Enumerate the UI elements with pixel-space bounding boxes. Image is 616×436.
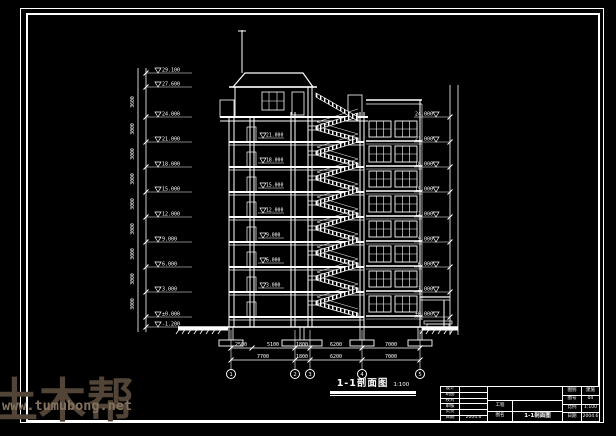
- level-label: 12.000: [162, 212, 180, 218]
- story-dim: 3000: [130, 173, 136, 185]
- axis-number: 2: [293, 372, 296, 378]
- project-value: [513, 401, 562, 410]
- story-dim: 3000: [130, 223, 136, 235]
- left-parapet: [220, 100, 234, 117]
- title-block-value: 2004.6: [582, 413, 599, 421]
- story-dim: 3000: [130, 273, 136, 285]
- title-block-label: 日期: [441, 416, 460, 421]
- level-mark-icon: [155, 287, 161, 292]
- level-label: 15.000: [162, 187, 180, 193]
- level-mark-icon: [433, 287, 439, 292]
- level-label: -1.200: [162, 322, 180, 328]
- drawing-title-text: 1-1剖面图: [337, 378, 389, 389]
- level-mark-icon: [155, 312, 161, 317]
- title-block-value: 建施: [582, 387, 599, 395]
- level-label: 3.000: [418, 287, 433, 293]
- level-label: 15.000: [415, 187, 433, 193]
- level-mark-icon: [433, 137, 439, 142]
- door-opening: [247, 152, 256, 167]
- level-mark-icon: [433, 162, 439, 167]
- story-dim: 3000: [130, 298, 136, 310]
- door-opening: [247, 277, 256, 292]
- penthouse-door: [292, 92, 304, 115]
- level-mark-icon: [155, 82, 161, 87]
- level-label: 18.000: [266, 158, 283, 164]
- level-mark-icon: [155, 68, 161, 73]
- drawing-title: 1-1剖面图 1:100: [330, 371, 416, 396]
- door-opening: [247, 127, 256, 142]
- title-block-signature-column: 设计制图校对审核负责日期2004.6: [441, 387, 488, 421]
- level-label: 18.000: [162, 162, 180, 168]
- level-mark-icon: [155, 137, 161, 142]
- title-block-value: 2004.6: [460, 416, 487, 421]
- entry-step: [424, 321, 452, 324]
- title-block-value: 1:100: [582, 405, 599, 413]
- level-mark-icon: [433, 212, 439, 217]
- dim-value: 5100: [267, 342, 279, 348]
- dim-value: 7700: [257, 354, 269, 360]
- level-label: 21.000: [266, 133, 283, 139]
- level-label: 3.000: [266, 283, 281, 289]
- story-dim: 3000: [130, 148, 136, 160]
- level-mark-icon: [155, 262, 161, 267]
- level-label: 9.000: [162, 237, 177, 243]
- level-label: ±0.000: [162, 312, 180, 318]
- level-label: 15.000: [266, 183, 283, 189]
- level-mark-icon: [433, 312, 439, 317]
- title-block-label: 图别: [563, 387, 582, 395]
- title-block-project-row: 工程: [488, 401, 562, 410]
- drawing-title-scale: 1:100: [393, 382, 409, 388]
- axis-number: 5: [418, 372, 421, 378]
- axis-number: 1: [229, 372, 232, 378]
- sheet-name-value: 1-1剖面图: [513, 412, 562, 421]
- story-dim: 3600: [130, 96, 136, 108]
- title-underline-thick: [330, 391, 416, 394]
- level-mark-icon: [155, 187, 161, 192]
- dim-value: 7000: [385, 354, 397, 360]
- project-label: 工程: [488, 401, 513, 410]
- title-block-info-column: 图别建施图号04比例1:100日期2004.6: [562, 387, 599, 421]
- level-mark-icon: [155, 237, 161, 242]
- ground: [176, 327, 458, 346]
- level-label: 24.000: [162, 112, 180, 118]
- title-block: 设计制图校对审核负责日期2004.6 工程 图名 1-1剖面图 图别建施图号04…: [440, 386, 600, 422]
- left-dimension-chain: 29.10027.60024.00021.00018.00015.00012.0…: [130, 68, 192, 333]
- title-block-sheet-row: 图名 1-1剖面图: [488, 411, 562, 421]
- level-label: 27.600: [162, 82, 180, 88]
- title-block-label: 日期: [563, 413, 582, 421]
- level-label: 21.000: [415, 137, 433, 143]
- level-mark-icon: [155, 112, 161, 117]
- level-mark-icon: [155, 162, 161, 167]
- level-label: 6.000: [418, 262, 433, 268]
- door-opening: [247, 227, 256, 242]
- level-label: 6.000: [266, 258, 281, 264]
- dim-value: 2500: [235, 342, 247, 348]
- level-mark-icon: [433, 262, 439, 267]
- level-label: 9.000: [418, 237, 433, 243]
- title-block-row: 比例1:100: [563, 404, 599, 413]
- title-block-label: 比例: [563, 405, 582, 413]
- drawing-sheet: 29.10027.60024.00021.00018.00015.00012.0…: [0, 0, 616, 436]
- dim-value: 6200: [330, 342, 342, 348]
- title-block-value: 04: [582, 396, 599, 404]
- door-opening: [247, 302, 256, 317]
- level-mark-icon: [155, 322, 161, 327]
- door-opening: [247, 202, 256, 217]
- dim-value: 1800: [296, 354, 308, 360]
- level-label: 29.100: [162, 68, 180, 74]
- penthouse: [220, 30, 362, 117]
- door-opening: [247, 177, 256, 192]
- watermark-url: www.tumubong.net: [2, 398, 132, 414]
- stair-flights: [308, 93, 358, 317]
- title-block-row: 日期2004.6: [563, 412, 599, 421]
- story-dim: 3000: [130, 248, 136, 260]
- story-dim: 3000: [130, 123, 136, 135]
- dim-value: 7000: [385, 342, 397, 348]
- level-mark-icon: [433, 112, 439, 117]
- level-label: 12.000: [415, 212, 433, 218]
- level-mark-icon: [433, 237, 439, 242]
- axis-number: 3: [308, 372, 311, 378]
- door-opening: [247, 252, 256, 267]
- title-block-middle-column: 工程 图名 1-1剖面图: [488, 387, 562, 421]
- watermark-brand: 土木帮: [0, 362, 135, 431]
- sheet-name-label: 图名: [488, 412, 513, 421]
- level-label: 9.000: [266, 233, 281, 239]
- floor-level-flags: 21.00018.00015.00012.0009.0006.0003.000: [258, 133, 284, 289]
- level-label: 18.000: [415, 162, 433, 168]
- title-block-label: 图号: [563, 396, 582, 404]
- title-underline-thin: [330, 395, 416, 396]
- level-mark-icon: [433, 187, 439, 192]
- elevation-windows: [366, 100, 422, 327]
- dim-value: 1800: [296, 342, 308, 348]
- level-label: 3.000: [162, 287, 177, 293]
- interior-doors: [247, 127, 256, 317]
- title-block-row: 日期2004.6: [441, 415, 487, 421]
- story-dim: 3000: [130, 198, 136, 210]
- title-block-firm-cell: [488, 387, 562, 401]
- level-label: ±0.000: [415, 312, 433, 318]
- level-mark-icon: [155, 212, 161, 217]
- level-label: 6.000: [162, 262, 177, 268]
- dim-value: 6200: [330, 354, 342, 360]
- penthouse-roof: [233, 73, 313, 87]
- level-label: 24.000: [415, 112, 433, 118]
- title-block-row: 图号04: [563, 395, 599, 404]
- level-label: 12.000: [266, 208, 283, 214]
- level-label: 21.000: [162, 137, 180, 143]
- title-block-row: 图别建施: [563, 387, 599, 395]
